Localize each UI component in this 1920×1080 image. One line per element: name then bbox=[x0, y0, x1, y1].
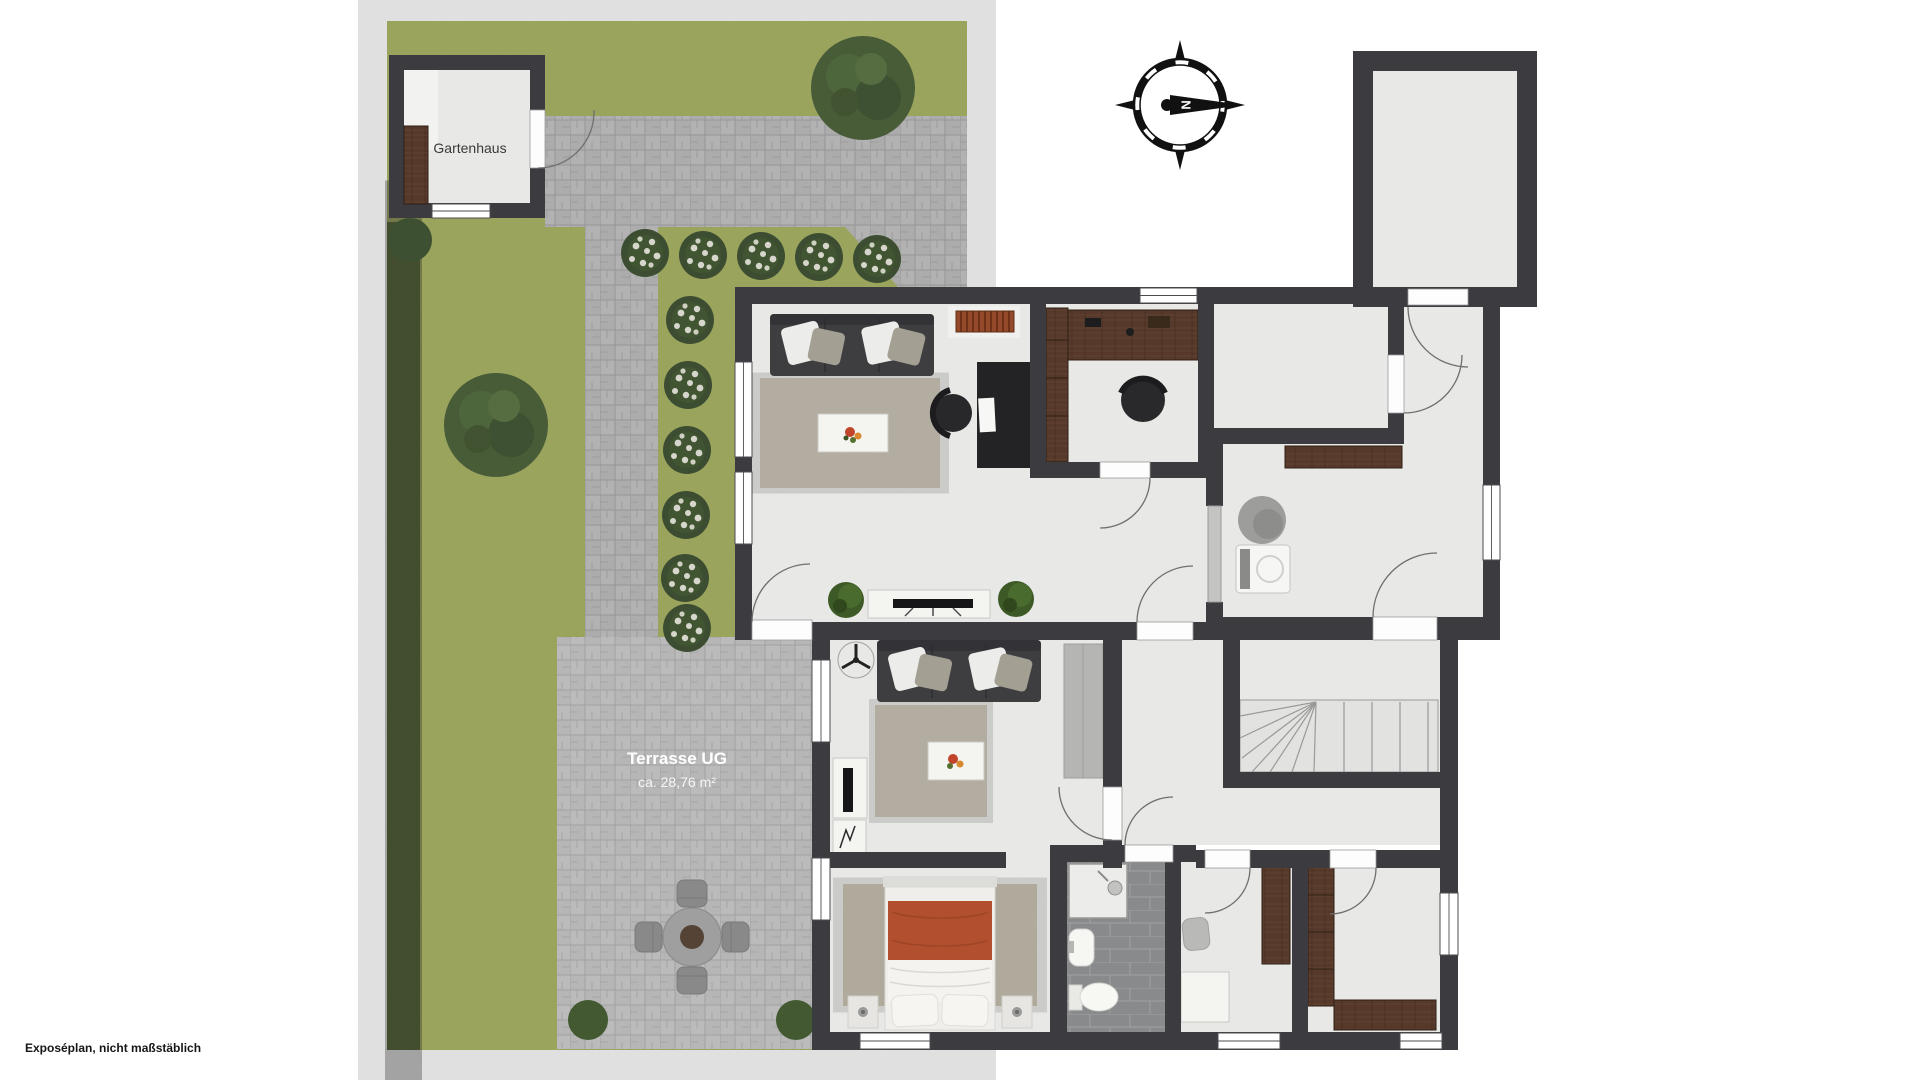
lounge-chair bbox=[1238, 496, 1286, 544]
pillow bbox=[891, 994, 939, 1027]
sideboard bbox=[1285, 446, 1402, 468]
office-desk bbox=[1068, 310, 1198, 360]
window bbox=[735, 362, 752, 457]
window bbox=[1483, 485, 1500, 560]
ceiling-fan bbox=[838, 642, 874, 678]
tv bbox=[843, 768, 853, 812]
floorplan-svg: N Gartenhaus Terrasse UG ca. 28,76 m² Ex… bbox=[0, 0, 1920, 1080]
window bbox=[1400, 1033, 1442, 1049]
wardrobe bbox=[1262, 858, 1290, 964]
room-top-right-floor bbox=[1214, 304, 1388, 444]
table bbox=[1181, 972, 1229, 1022]
sideboard bbox=[1334, 1000, 1436, 1030]
tv-lowboard bbox=[868, 590, 990, 618]
window bbox=[1218, 1033, 1280, 1049]
window bbox=[812, 858, 830, 920]
sink bbox=[1068, 929, 1094, 966]
office-chair bbox=[1121, 378, 1165, 422]
toilet bbox=[1069, 983, 1118, 1011]
picture-frame bbox=[833, 820, 866, 856]
hallway-floor bbox=[1030, 478, 1206, 640]
bed bbox=[883, 876, 997, 1030]
wardrobe bbox=[1308, 858, 1334, 1006]
pillow bbox=[941, 994, 988, 1027]
garden-house-cabinet bbox=[404, 126, 428, 204]
coffee-table bbox=[818, 414, 888, 452]
window bbox=[812, 660, 830, 742]
sliding-door bbox=[1208, 506, 1221, 602]
tv bbox=[893, 599, 973, 608]
headboard bbox=[883, 876, 997, 887]
terrace-label: Terrasse UG bbox=[627, 749, 727, 768]
coffee-table bbox=[928, 742, 984, 780]
compass-north-label: N bbox=[1179, 100, 1194, 109]
shower bbox=[1069, 864, 1127, 918]
desk bbox=[977, 362, 1031, 468]
window bbox=[1440, 893, 1458, 955]
disclaimer-label: Exposéplan, nicht maßstäblich bbox=[25, 1041, 201, 1055]
wardrobe bbox=[1064, 644, 1103, 778]
nightstand bbox=[848, 996, 878, 1028]
staircase bbox=[1240, 700, 1438, 772]
nightstand bbox=[1002, 996, 1032, 1028]
plant bbox=[998, 581, 1034, 617]
terrace-area-label: ca. 28,76 m² bbox=[638, 774, 716, 790]
window bbox=[735, 472, 752, 544]
garden-house-label: Gartenhaus bbox=[433, 140, 506, 156]
compass-rose: N bbox=[1115, 40, 1245, 170]
chair bbox=[1181, 917, 1210, 952]
page: N Gartenhaus Terrasse UG ca. 28,76 m² Ex… bbox=[0, 0, 1920, 1080]
radiator bbox=[948, 306, 1020, 338]
window bbox=[1140, 288, 1197, 303]
bookshelf bbox=[1046, 308, 1068, 462]
washing-machine bbox=[1236, 545, 1290, 593]
window bbox=[860, 1033, 930, 1049]
storage-room-floor bbox=[1373, 71, 1517, 287]
sofa bbox=[770, 314, 934, 376]
sofa bbox=[877, 640, 1041, 702]
window bbox=[432, 204, 490, 218]
utility-room-floor bbox=[1206, 444, 1483, 640]
plant bbox=[828, 582, 864, 618]
tv-lowboard bbox=[833, 758, 867, 818]
